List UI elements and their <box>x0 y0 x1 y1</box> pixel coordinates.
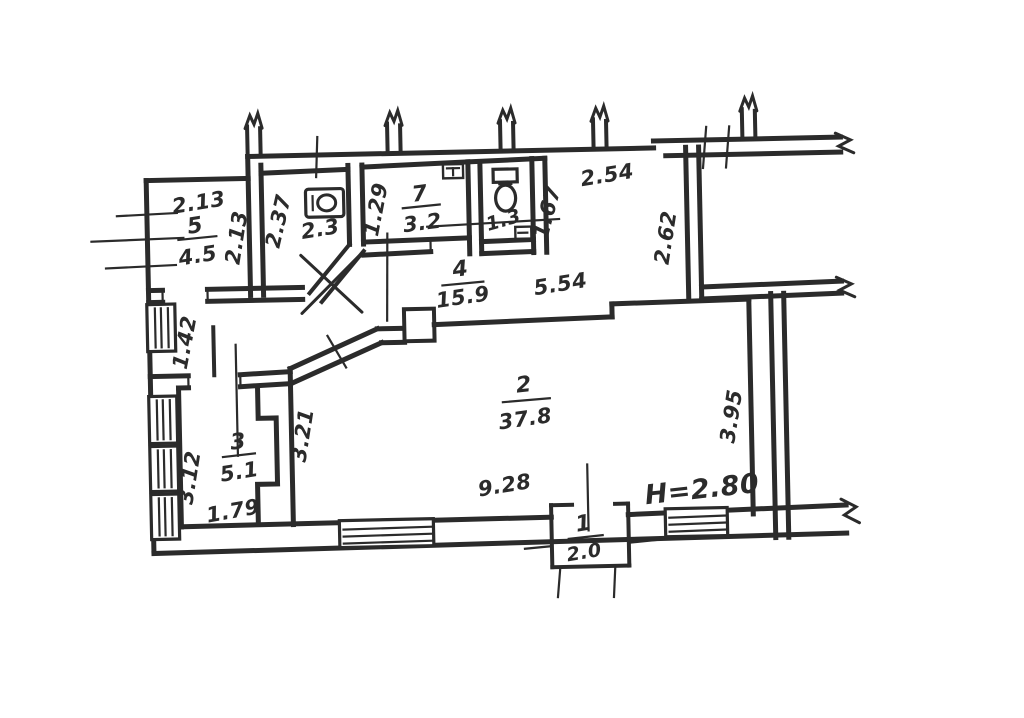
room1-number: 1 <box>574 510 594 537</box>
wall-break-icon <box>841 499 859 523</box>
radiator-icon <box>151 494 180 540</box>
room3-area: 5.1 <box>218 457 260 487</box>
room-2: 2 37.8 9.28 3.21 3.95 H=2.80 <box>283 299 761 525</box>
sink-icon <box>305 188 344 217</box>
dim-hall-width: 2.54 <box>579 159 636 191</box>
dim-hall-depth: 2.62 <box>650 209 682 266</box>
top-exterior-wall <box>245 94 854 179</box>
dim-room2-width: 9.28 <box>476 469 533 501</box>
dim-room6-depth: 2.37 <box>261 192 296 250</box>
dim-corridor-width: 5.54 <box>532 268 589 300</box>
floor-plan: 2.13 2.13 5 4.5 2.37 2.3 <box>0 0 1024 718</box>
wall-break-icon <box>245 113 262 128</box>
room-1: 1 2.0 <box>523 463 657 599</box>
radiator-icon <box>149 396 178 444</box>
wall-break-icon <box>498 108 515 123</box>
room5-number: 5 <box>185 213 205 240</box>
doorway-pier <box>404 309 435 342</box>
room-4-corridor: 4 15.9 5.54 <box>434 254 590 313</box>
hall-area: 2.54 2.62 <box>578 147 701 301</box>
room2-number: 2 <box>515 372 533 399</box>
vent-icon <box>443 164 463 178</box>
room7-area: 3.2 <box>402 209 443 238</box>
wall-break-icon <box>591 106 608 121</box>
room1-area: 2.0 <box>565 539 603 566</box>
room-6: 2.37 2.3 <box>259 165 365 314</box>
wall-break-icon <box>385 110 402 125</box>
radiator-icon <box>150 446 179 492</box>
dim-room2-depth-right: 3.95 <box>715 388 747 445</box>
wall-break-icon <box>740 96 757 111</box>
radiator-icon <box>147 304 176 352</box>
window-icon <box>339 519 434 548</box>
room3-number: 3 <box>229 429 247 456</box>
room2-area: 37.8 <box>497 403 554 434</box>
room4-number: 4 <box>450 256 470 283</box>
room6-area: 2.3 <box>299 214 341 244</box>
room5-area: 4.5 <box>176 241 219 271</box>
floor-plan-document: 2.13 2.13 5 4.5 2.37 2.3 <box>0 0 1024 718</box>
window-icon <box>665 508 728 537</box>
ceiling-height-note: H=2.80 <box>643 468 761 511</box>
room7-number: 7 <box>410 181 429 208</box>
left-wall-windows <box>147 304 180 540</box>
